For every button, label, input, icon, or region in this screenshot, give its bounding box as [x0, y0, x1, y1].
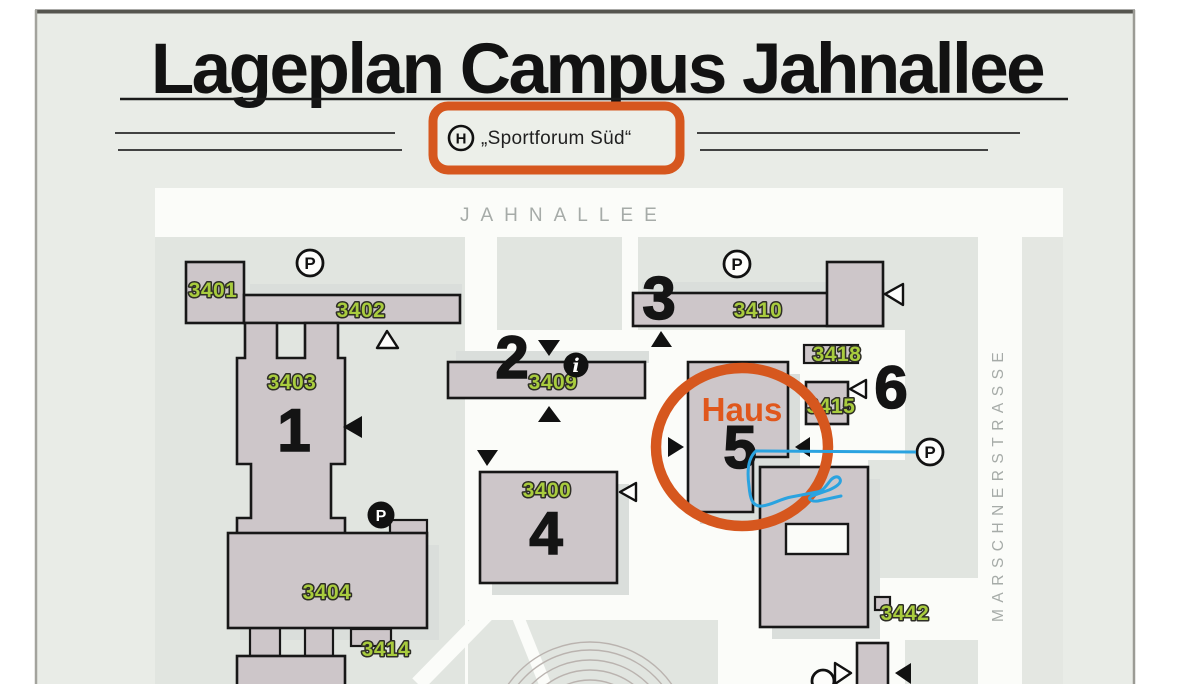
- building-3403-lower-stub-right: [305, 628, 333, 656]
- parking-filled-icon: P: [368, 502, 395, 529]
- building-bottom-right-shape: [857, 643, 888, 684]
- blue-pointer-line: [756, 451, 916, 452]
- parking-letter: P: [731, 255, 742, 274]
- building-3442: 3442: [875, 597, 929, 625]
- block-right: [905, 237, 978, 578]
- building-3404-code: 3404: [303, 581, 352, 604]
- building-3401-code: 3401: [189, 279, 238, 302]
- building-3414-code: 3414: [362, 638, 411, 661]
- building-3-number: 3: [642, 265, 675, 332]
- parking-letter: P: [924, 443, 935, 462]
- building-3400: 3400 4: [480, 472, 617, 583]
- building-l-courtyard: [786, 524, 848, 554]
- parking-icon: P: [297, 250, 323, 276]
- building-3410-wing: [827, 262, 883, 326]
- building-3400-code: 3400: [523, 479, 572, 502]
- building-3418-code: 3418: [813, 343, 862, 366]
- block-far-right: [1022, 237, 1063, 684]
- block-right-lower: [905, 640, 978, 684]
- building-3404: 3404: [228, 520, 427, 628]
- parking-icon-partial: [812, 670, 834, 684]
- parking-icon: P: [917, 439, 943, 465]
- building-2-number: 2: [495, 324, 528, 391]
- block-mid-upper: [497, 237, 622, 330]
- building-3418: 3418: [804, 343, 861, 366]
- building-4-number: 4: [529, 500, 563, 567]
- parking-letter: P: [304, 254, 315, 273]
- info-letter: i: [572, 355, 579, 377]
- block-stadium: [468, 620, 718, 684]
- building-5-number: 5: [723, 414, 756, 481]
- building-3403-code: 3403: [268, 371, 317, 394]
- building-3410-code: 3410: [734, 299, 783, 322]
- page-title: Lageplan Campus Jahnallee: [151, 30, 1044, 109]
- tram-stop-name: „Sportforum Süd“: [481, 128, 632, 149]
- building-1-number: 1: [277, 397, 310, 464]
- street-label-jahnallee: JAHNALLEE: [460, 205, 668, 226]
- parking-letter: P: [376, 508, 387, 525]
- building-3442-code: 3442: [881, 602, 930, 625]
- building-3402: 3402: [244, 295, 460, 323]
- building-6-number: 6: [874, 354, 907, 421]
- tram-stop-letter: H: [456, 131, 467, 148]
- street-label-marschnerstrasse: MARSCHNERSTRASSE: [990, 346, 1007, 622]
- tram-stop-callout: H „Sportforum Süd“: [433, 106, 680, 170]
- building-3403-lower-stub-left: [250, 628, 280, 656]
- building-3403-lower-shape: [237, 656, 345, 684]
- info-icon: i: [564, 353, 589, 378]
- building-3402-code: 3402: [337, 299, 386, 322]
- scanned-campus-map: Lageplan Campus Jahnallee H „Sportforum …: [0, 0, 1200, 684]
- parking-icon: P: [724, 251, 750, 277]
- building-3401: 3401: [186, 262, 244, 323]
